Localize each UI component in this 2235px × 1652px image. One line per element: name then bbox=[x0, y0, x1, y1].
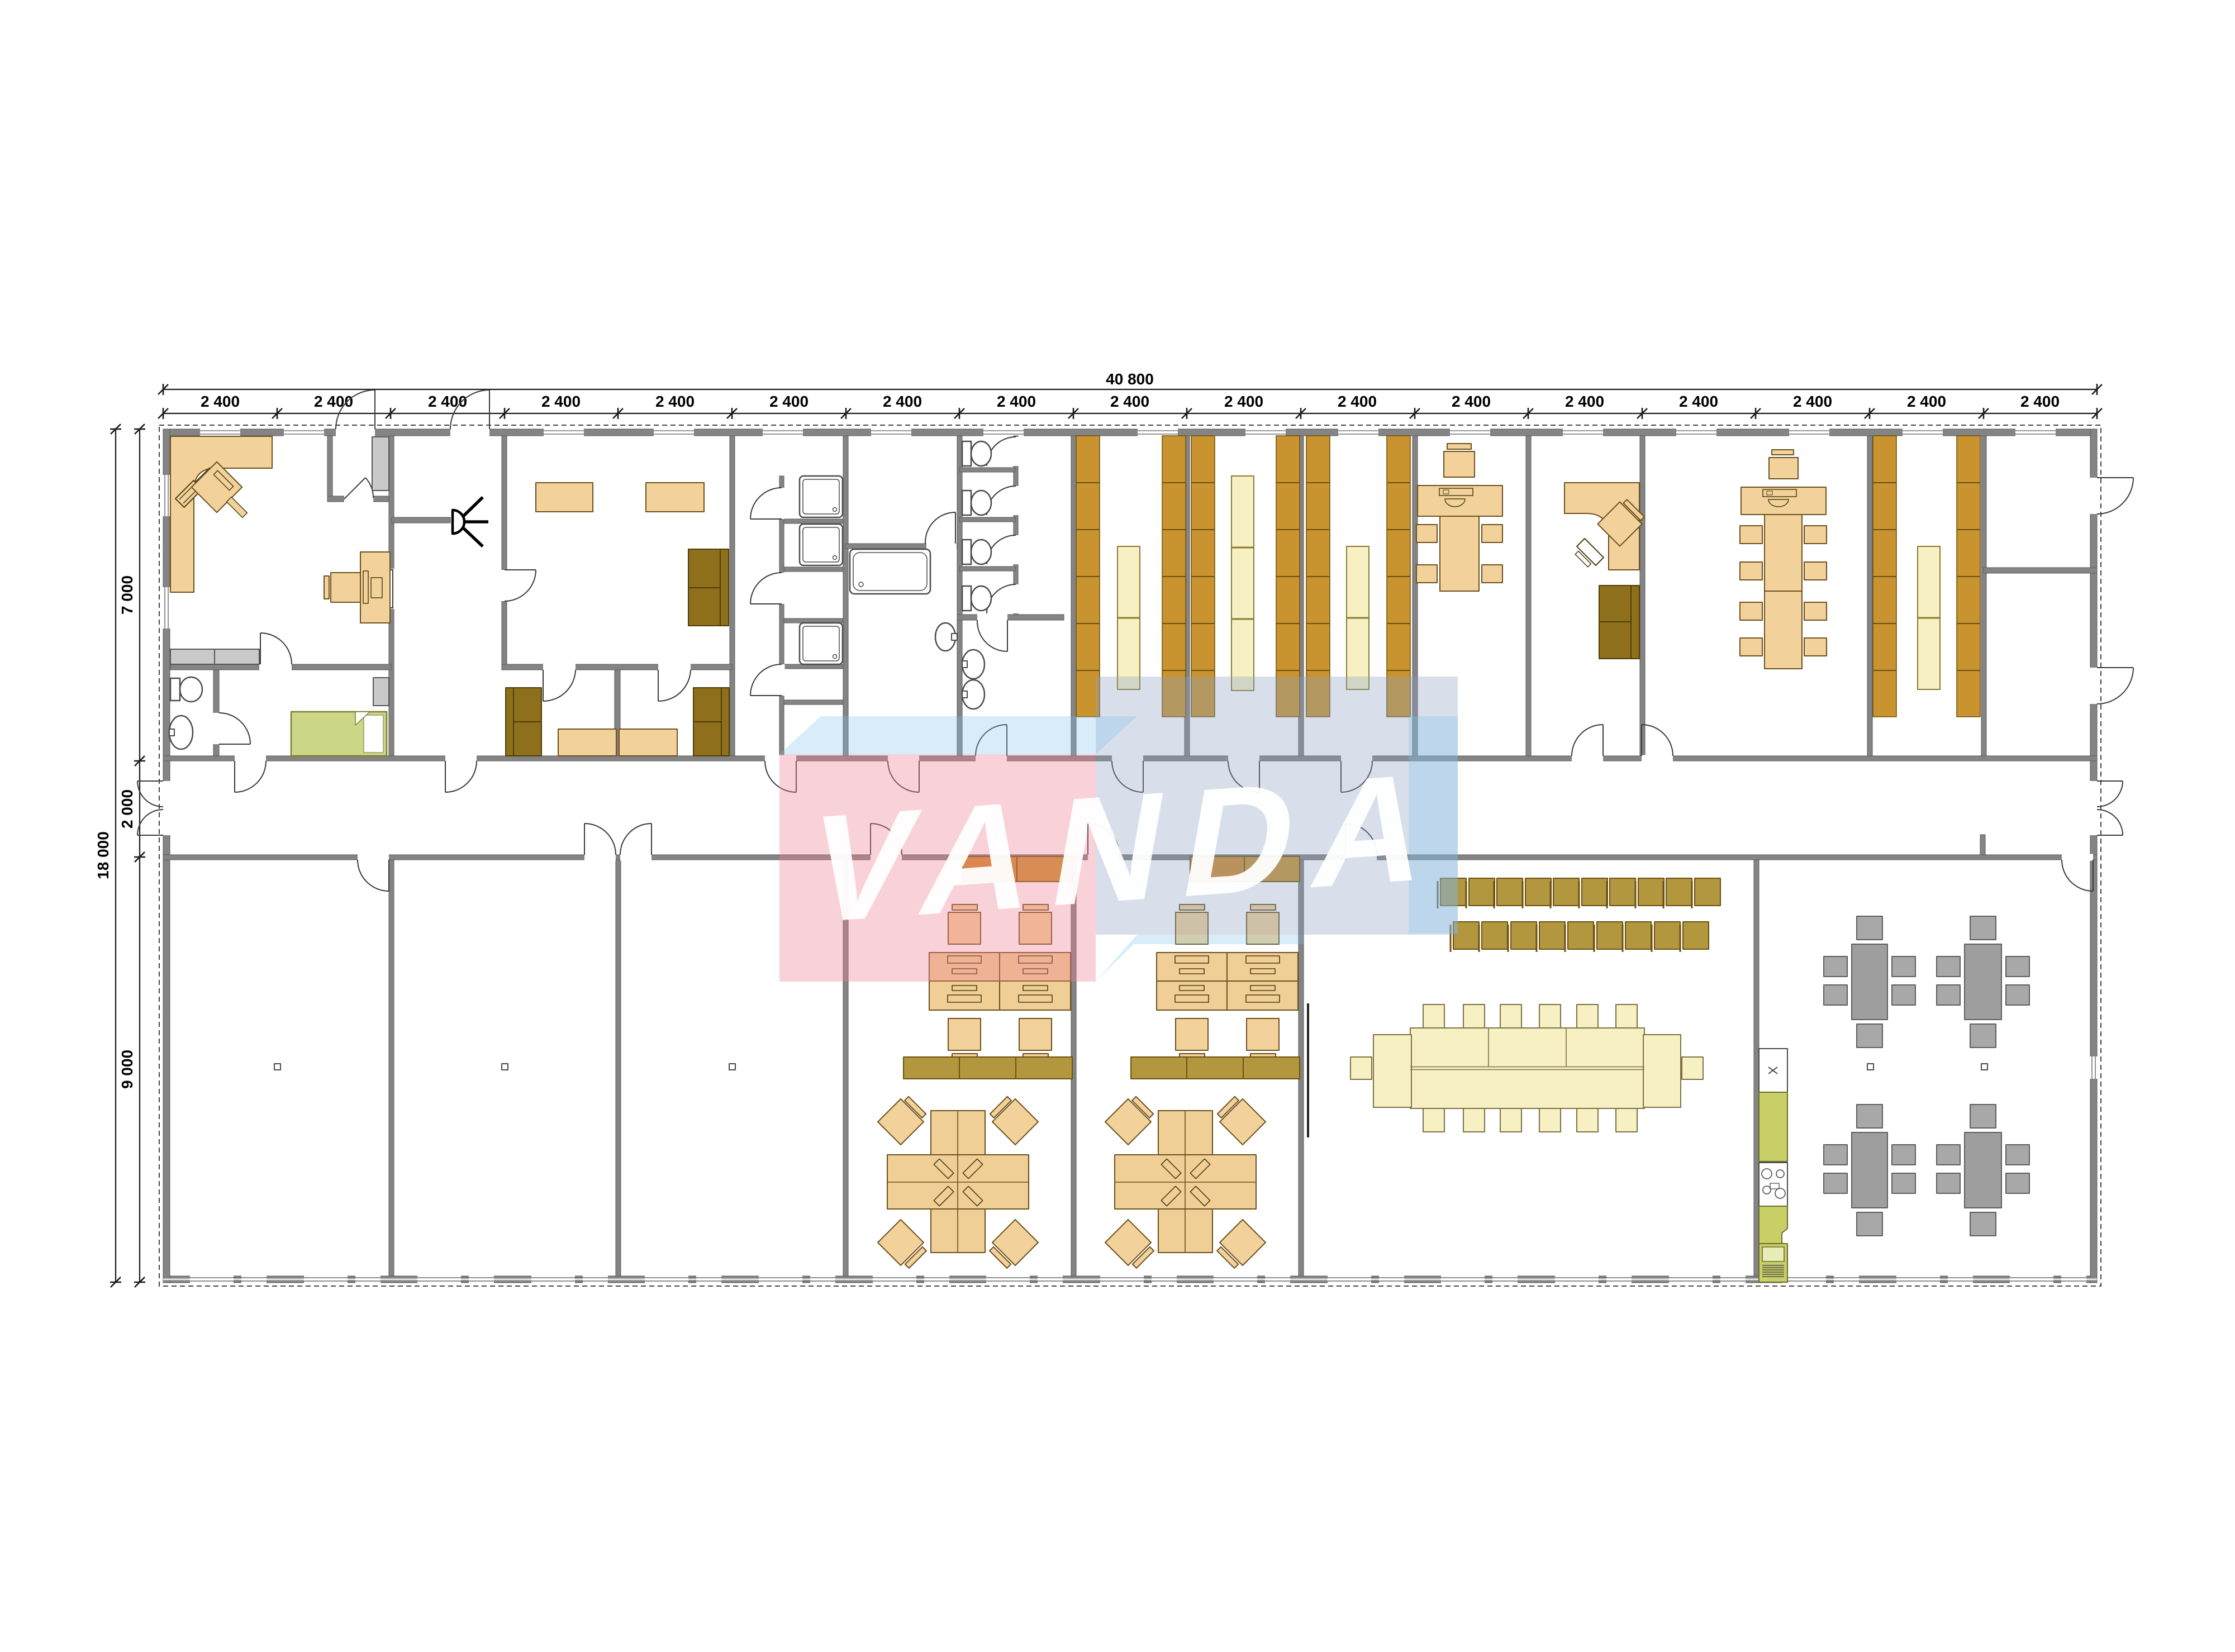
svg-text:2 400: 2 400 bbox=[997, 393, 1036, 410]
svg-text:2 400: 2 400 bbox=[2020, 393, 2060, 410]
svg-text:2 400: 2 400 bbox=[1565, 393, 1604, 410]
svg-text:2 400: 2 400 bbox=[883, 393, 922, 410]
svg-text:2 400: 2 400 bbox=[1110, 393, 1149, 410]
svg-text:2 400: 2 400 bbox=[201, 393, 240, 410]
svg-text:2 400: 2 400 bbox=[1452, 393, 1491, 410]
svg-text:2 400: 2 400 bbox=[1793, 393, 1832, 410]
svg-text:2 400: 2 400 bbox=[541, 393, 581, 410]
svg-text:2 400: 2 400 bbox=[1338, 393, 1377, 410]
svg-text:9 000: 9 000 bbox=[118, 1050, 136, 1089]
svg-text:2 400: 2 400 bbox=[1907, 393, 1946, 410]
svg-text:40 800: 40 800 bbox=[1106, 370, 1154, 388]
svg-text:18 000: 18 000 bbox=[94, 831, 112, 879]
svg-text:7 000: 7 000 bbox=[118, 575, 136, 615]
svg-text:2 000: 2 000 bbox=[118, 789, 136, 829]
svg-text:2 400: 2 400 bbox=[1679, 393, 1718, 410]
svg-text:2 400: 2 400 bbox=[1224, 393, 1263, 410]
svg-text:2 400: 2 400 bbox=[655, 393, 695, 410]
svg-text:2 400: 2 400 bbox=[769, 393, 809, 410]
